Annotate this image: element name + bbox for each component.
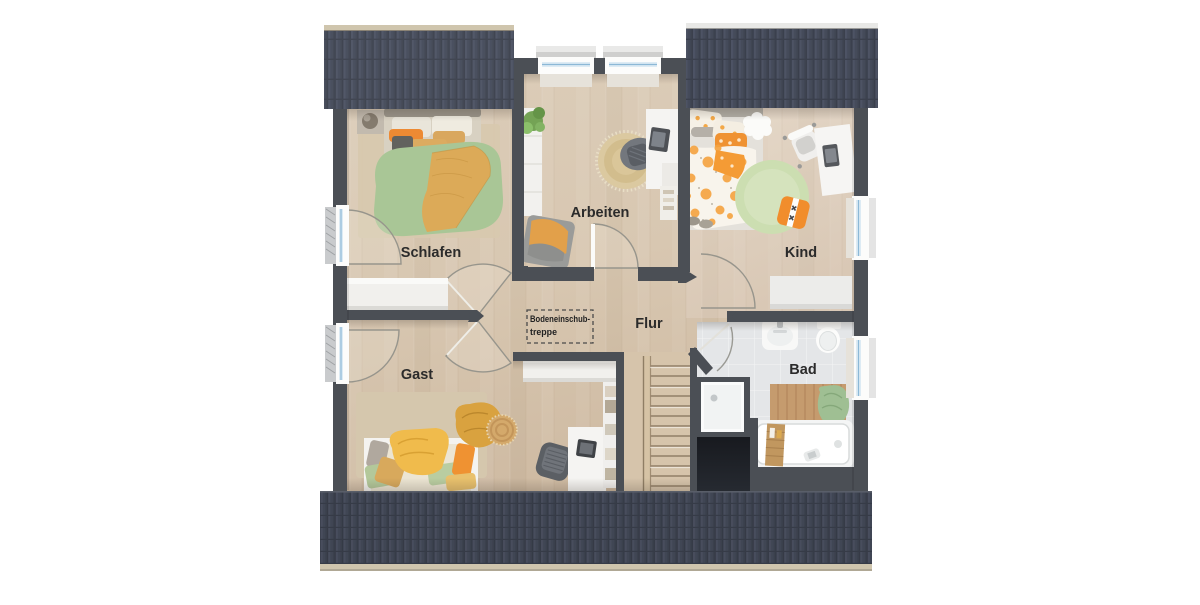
svg-text:Flur: Flur [635, 316, 663, 332]
svg-text:Bad: Bad [789, 362, 816, 378]
svg-text:Gast: Gast [401, 367, 433, 383]
svg-text:Schlafen: Schlafen [401, 245, 461, 261]
svg-text:Arbeiten: Arbeiten [571, 205, 630, 221]
svg-text:Kind: Kind [785, 245, 817, 261]
svg-text:treppe: treppe [530, 327, 557, 338]
svg-text:Bodeneinschub-: Bodeneinschub- [530, 314, 590, 325]
